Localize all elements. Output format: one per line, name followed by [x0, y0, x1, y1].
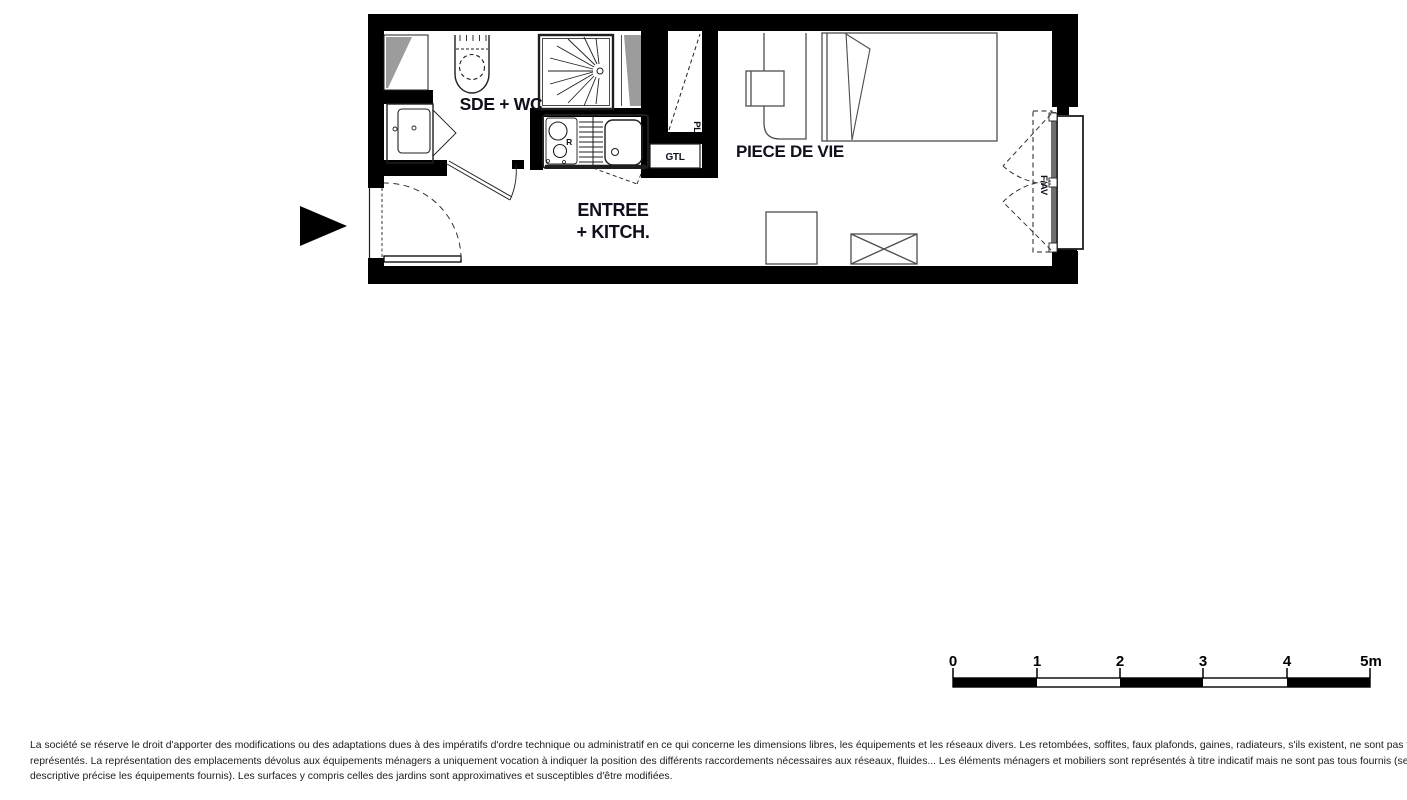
fridge-door-dashes	[593, 168, 643, 184]
bath-door-leaf-b	[449, 161, 512, 197]
vanity-corner-mark	[433, 110, 456, 156]
wall-right-upper	[1052, 31, 1078, 107]
disclaimer-line-3: descriptive précise les équipements four…	[30, 769, 1398, 785]
scale-label-4: 4	[1283, 653, 1292, 670]
room-label-living: PIECE DE VIE	[736, 142, 844, 161]
wall-window-nub-top	[1057, 107, 1069, 115]
scale-label-1: 1	[1033, 653, 1041, 670]
wall-living-divider	[702, 31, 718, 178]
entrance-group	[300, 183, 461, 262]
shower-spray-rays	[548, 37, 599, 106]
annotation-gtl: GTL	[665, 152, 684, 163]
floor-plan-page: SDE + WC ENTREE + KITCH. PIECE DE VIE GT…	[0, 0, 1407, 800]
window-hinge-mid	[1049, 178, 1057, 187]
window-hinge-bottom	[1049, 243, 1057, 252]
wall-closet-bottom-band	[641, 132, 703, 144]
room-label-entry-line1: ENTREE	[577, 200, 649, 220]
vanity-basin	[398, 109, 430, 153]
annotation-fridge: R	[566, 137, 572, 147]
legal-disclaimer: La société se réserve le droit d'apporte…	[30, 738, 1398, 785]
bed-fold-line	[846, 33, 852, 140]
vanity-counter	[387, 104, 433, 163]
entrance-door-swing-arc	[384, 183, 461, 259]
sink-drain	[612, 149, 619, 156]
scale-bar: 0 1 2 3 4 5m	[949, 653, 1382, 687]
wall-kitchen-stub	[530, 108, 543, 170]
cooktop-dot-1	[547, 160, 550, 163]
cooktop-burner-large	[549, 122, 567, 140]
side-table	[766, 212, 817, 264]
scale-bar-ticks	[953, 668, 1370, 678]
shower-drain	[597, 68, 603, 74]
wall-layer	[368, 14, 1078, 284]
shower-tray-inner	[543, 39, 610, 106]
desk-chair	[746, 71, 784, 106]
closet-diagonal	[669, 34, 700, 130]
bath-door-swing-arc	[510, 164, 516, 200]
annotation-window: F/AV	[1038, 175, 1049, 196]
bed-duvet-fold	[846, 34, 870, 140]
drainer-lines	[579, 122, 603, 162]
wall-duct-right-block	[641, 31, 668, 134]
disclaimer-line-2: représentés. La représentation des empla…	[30, 754, 1398, 770]
disclaimer-line-1: La société se réserve le droit d'apporte…	[30, 738, 1398, 754]
wall-bottom	[368, 266, 1078, 284]
floor-plan-svg: SDE + WC ENTREE + KITCH. PIECE DE VIE GT…	[0, 0, 1407, 800]
vanity-tap-dot-1	[393, 127, 397, 131]
scale-bar-seg-4-5	[1287, 678, 1370, 687]
toilet-tank-ticks	[460, 35, 486, 41]
bath-door-leaf-a	[447, 164, 510, 200]
duct-panel-shade	[624, 35, 641, 106]
wall-top	[368, 14, 1078, 31]
annotation-closet: PL	[691, 121, 702, 133]
wall-right-lower	[1052, 251, 1078, 284]
wall-bath-duct-band	[384, 90, 433, 104]
scale-label-5m: 5m	[1360, 653, 1382, 670]
scale-bar-seg-0-1	[953, 678, 1037, 687]
wall-bath-door-stop	[512, 160, 524, 169]
scale-label-0: 0	[949, 653, 957, 670]
wall-gtl-bottom	[641, 168, 703, 178]
kitchen-counter	[543, 115, 648, 168]
cooktop-burner-small	[554, 145, 567, 158]
storage-box	[851, 234, 917, 264]
entrance-door-leaf	[384, 256, 461, 262]
entrance-arrow-icon	[300, 206, 347, 246]
kitchen-group	[543, 115, 648, 184]
cooktop-dot-2	[563, 161, 566, 164]
toilet-bowl	[460, 55, 485, 80]
kitchen-sink	[605, 120, 642, 165]
scale-bar-seg-2-3	[1120, 678, 1203, 687]
bed	[822, 33, 997, 141]
scale-label-2: 2	[1116, 653, 1124, 670]
room-label-bathroom: SDE + WC	[460, 94, 543, 114]
bath-duct-shade	[386, 37, 412, 88]
vanity-tap-dot-2	[412, 126, 416, 130]
window-ledge	[1057, 116, 1083, 249]
room-label-entry-line2: + KITCH.	[576, 222, 649, 242]
scale-label-3: 3	[1199, 653, 1207, 670]
